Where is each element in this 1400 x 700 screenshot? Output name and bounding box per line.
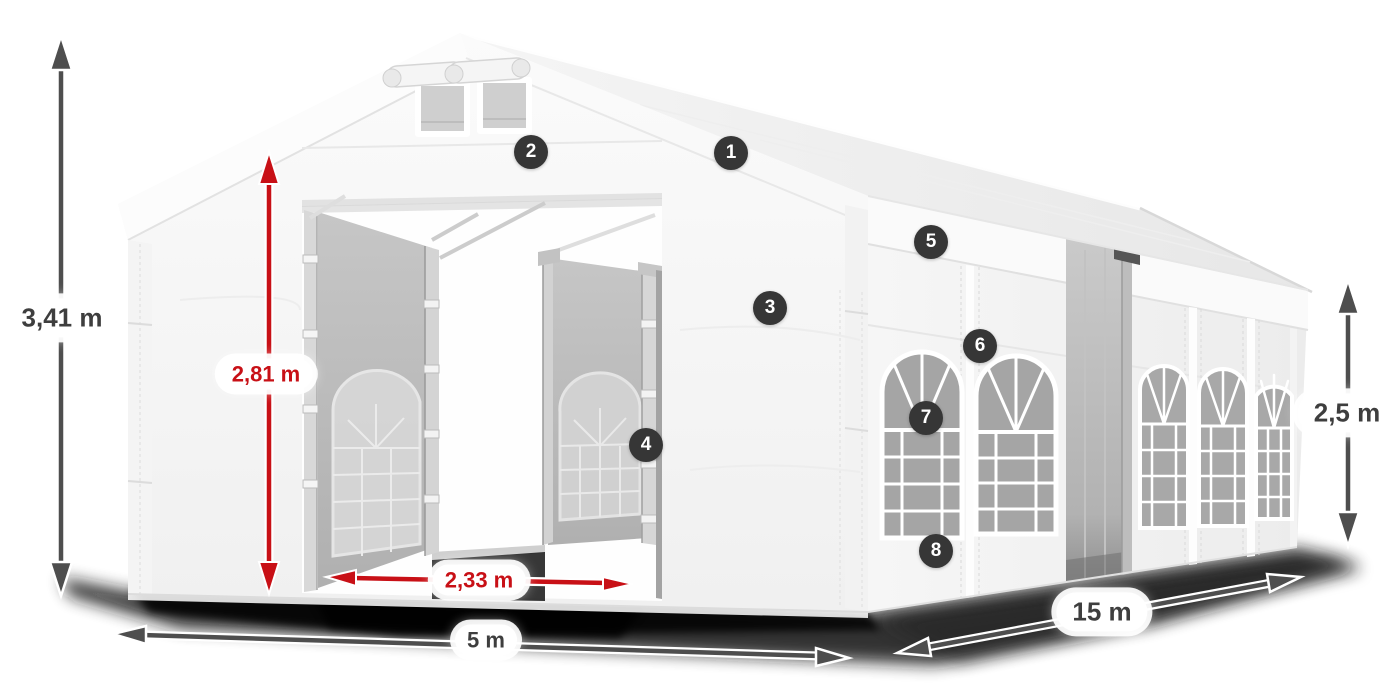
side-entrance-opening bbox=[1066, 237, 1140, 583]
callout-badge-5: 5 bbox=[914, 225, 948, 259]
door-pole-left bbox=[425, 246, 439, 556]
dimension-label-front-width: 5 m bbox=[455, 624, 517, 655]
side-entrance-pole bbox=[1122, 258, 1132, 575]
side-window-1 bbox=[882, 352, 962, 538]
side-window-2 bbox=[976, 356, 1056, 534]
callout-badge-3: 3 bbox=[753, 291, 787, 325]
side-window-3 bbox=[1140, 366, 1188, 528]
door-pole-right-inner bbox=[543, 256, 553, 545]
dimension-label-entrance-height: 2,81 m bbox=[220, 358, 313, 389]
side-window-4 bbox=[1199, 369, 1247, 526]
dimension-label-entrance-width: 2,33 m bbox=[433, 564, 526, 595]
callout-badge-8: 8 bbox=[919, 534, 953, 568]
callout-badge-1: 1 bbox=[714, 136, 748, 170]
entrance-door-left bbox=[318, 212, 439, 588]
callout-badge-7: 7 bbox=[909, 401, 943, 435]
tent-illustration bbox=[0, 0, 1400, 700]
callout-badge-2: 2 bbox=[514, 135, 548, 169]
callout-badge-6: 6 bbox=[963, 329, 997, 363]
front-entrance-opening bbox=[302, 193, 662, 601]
dimension-label-total-height: 3,41 m bbox=[6, 298, 119, 337]
dimension-label-side-length: 15 m bbox=[1056, 592, 1147, 631]
side-window-5 bbox=[1256, 375, 1292, 519]
callout-badge-4: 4 bbox=[629, 428, 663, 462]
dimension-label-side-height: 2,5 m bbox=[1298, 393, 1397, 432]
tent-dimension-diagram: 3,41 m 2,81 m 2,33 m 5 m 15 m 2,5 m 1 2 … bbox=[0, 0, 1400, 700]
door-pole-right-jamb bbox=[642, 268, 656, 545]
